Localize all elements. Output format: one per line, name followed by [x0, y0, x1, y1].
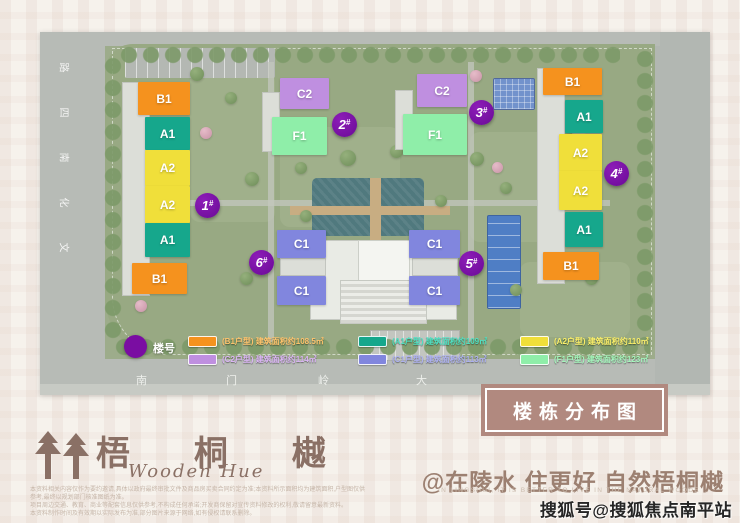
building-badge-3: 3#: [469, 100, 494, 125]
unit-block-a2: A2: [559, 134, 602, 171]
road-east: [655, 32, 710, 395]
building-number-marker-label: 楼号: [153, 340, 175, 356]
badge-number: 5: [466, 256, 473, 271]
unit-block-c1: C1: [277, 276, 326, 305]
tree: [245, 172, 259, 186]
legend-item-f1: (F1户型) 建筑面积约123㎡: [520, 354, 648, 364]
unit-block-b1: B1: [543, 252, 599, 280]
badge-hash: #: [209, 200, 213, 208]
road-name-west-char: 四: [58, 108, 73, 118]
unit-block-c1: C1: [409, 230, 460, 258]
unit-block-a1: A1: [565, 100, 603, 133]
unit-block-c1: C1: [409, 276, 460, 305]
legend-label-a2: (A2户型) 建筑面积约110㎡: [554, 336, 649, 347]
badge-hash: #: [473, 258, 477, 266]
disclaimer-line: 项目周边交通、教育、商业等配套信息仅供参考,不构成任何承诺;开发商保留对宣传资料…: [30, 502, 365, 510]
legend-swatch-a1: [358, 336, 387, 347]
road-name-west-char: 南: [58, 153, 73, 163]
disclaimer-line: 本资料相关内容仅作为要约邀请,具体以政府最终审批文件及商品房买卖合同约定为准;本…: [30, 486, 365, 502]
road-name-south-char: 门: [226, 372, 237, 388]
title-plate: 楼栋分布图: [485, 388, 664, 432]
tree: [435, 195, 447, 207]
unit-block-c1: C1: [277, 230, 326, 258]
logo-trees-icon: [34, 431, 92, 479]
unit-block-f1: F1: [403, 114, 467, 155]
flowering-tree: [200, 127, 212, 139]
unit-block-b1: B1: [132, 263, 187, 294]
legend-label-f1: (F1户型) 建筑面积约123㎡: [554, 354, 648, 365]
legend-swatch-c2: [188, 354, 217, 365]
legend-item-a1: (A1户型) 建筑面积约109㎡: [358, 336, 487, 346]
site-plan-map: B1 A1 A2 A2 A1 B1 C2 F1 C2 F1 B1 A1 A2 A…: [40, 32, 710, 395]
tree: [500, 182, 512, 194]
sohu-watermark: 搜狐号@搜狐焦点南平站: [540, 496, 732, 521]
unit-block-a2: A2: [145, 150, 190, 186]
legend-swatch-a2: [520, 336, 549, 347]
legend-item-a2: (A2户型) 建筑面积约110㎡: [520, 336, 649, 346]
flowering-tree: [135, 300, 147, 312]
legend-item-b1: (B1户型) 建筑面积约108.5㎡: [188, 336, 324, 346]
legend-item-c2: (C2户型) 建筑面积约114㎡: [188, 354, 317, 364]
clubhouse-hall: [358, 240, 410, 282]
building-badge-1: 1#: [195, 193, 220, 218]
tree: [510, 284, 522, 296]
building-badge-6: 6#: [249, 250, 274, 275]
disclaimer-line: 本资料制作时间及有效期以实际发布为准,部分图片来源于网络,如有侵权请联系删除。: [30, 510, 365, 518]
building-badge-4: 4#: [604, 161, 629, 186]
unit-block-b1: B1: [543, 68, 602, 95]
badge-number: 3: [476, 105, 483, 120]
tree: [300, 210, 312, 222]
slogan-english: In Lingshui, it is better to live in the…: [438, 487, 700, 494]
legend-label-a1: (A1户型) 建筑面积约109㎡: [392, 336, 487, 347]
legend-label-c2: (C2户型) 建筑面积约114㎡: [222, 354, 317, 365]
legend-swatch-f1: [520, 354, 549, 365]
unit-block-f1: F1: [272, 117, 327, 155]
building-badge-5: 5#: [459, 251, 484, 276]
legend-label-c1: (C1户型) 建筑面积约113㎡: [392, 354, 487, 365]
legend-swatch-b1: [188, 336, 217, 347]
unit-block-a1: A1: [145, 117, 190, 150]
tree: [240, 272, 253, 285]
unit-block-a1: A1: [145, 223, 190, 257]
tree: [190, 67, 204, 81]
badge-number: 1: [202, 198, 209, 213]
tree-column: [104, 57, 122, 342]
tree-column: [636, 50, 654, 340]
road-name-south-char: 南: [136, 372, 147, 388]
unit-block-c2: C2: [280, 78, 329, 109]
badge-hash: #: [346, 119, 350, 127]
unit-block-a2: A2: [559, 171, 602, 210]
flowering-tree: [492, 162, 503, 173]
tree: [225, 92, 237, 104]
tree: [340, 150, 356, 166]
badge-number: 6: [256, 255, 263, 270]
tree: [470, 152, 484, 166]
building-core: [412, 258, 458, 276]
road-name-south-char: 岭: [318, 372, 329, 388]
road-name-west-char: 化: [58, 198, 73, 208]
badge-hash: #: [263, 257, 267, 265]
legend-item-c1: (C1户型) 建筑面积约113㎡: [358, 354, 487, 364]
disclaimer-text: 本资料相关内容仅作为要约邀请,具体以政府最终审批文件及商品房买卖合同约定为准;本…: [30, 486, 365, 518]
building-number-marker: [124, 335, 147, 358]
legend-label-b1: (B1户型) 建筑面积约108.5㎡: [222, 336, 324, 347]
unit-block-a2: A2: [145, 186, 190, 223]
flowering-tree: [470, 70, 482, 82]
tree: [295, 162, 307, 174]
badge-number: 4: [611, 166, 618, 181]
badge-hash: #: [483, 107, 487, 115]
road-name-west-char: 文: [58, 243, 73, 253]
unit-block-b1: B1: [138, 82, 190, 115]
building-badge-2: 2#: [332, 112, 357, 137]
project-name-english: Wooden Hue: [128, 461, 264, 482]
legend-swatch-c1: [358, 354, 387, 365]
building-core: [280, 258, 326, 276]
unit-block-a1: A1: [565, 212, 603, 247]
poster-page: B1 A1 A2 A2 A1 B1 C2 F1 C2 F1 B1 A1 A2 A…: [0, 0, 740, 523]
unit-block-c2: C2: [417, 74, 467, 107]
road-west: [40, 32, 105, 395]
road-name-south-char: 大: [416, 372, 427, 388]
road-name-west-char: 路: [58, 63, 73, 73]
badge-number: 2: [339, 117, 346, 132]
badge-hash: #: [618, 168, 622, 176]
tree-row: [120, 46, 620, 64]
swimming-pool: [493, 78, 535, 110]
